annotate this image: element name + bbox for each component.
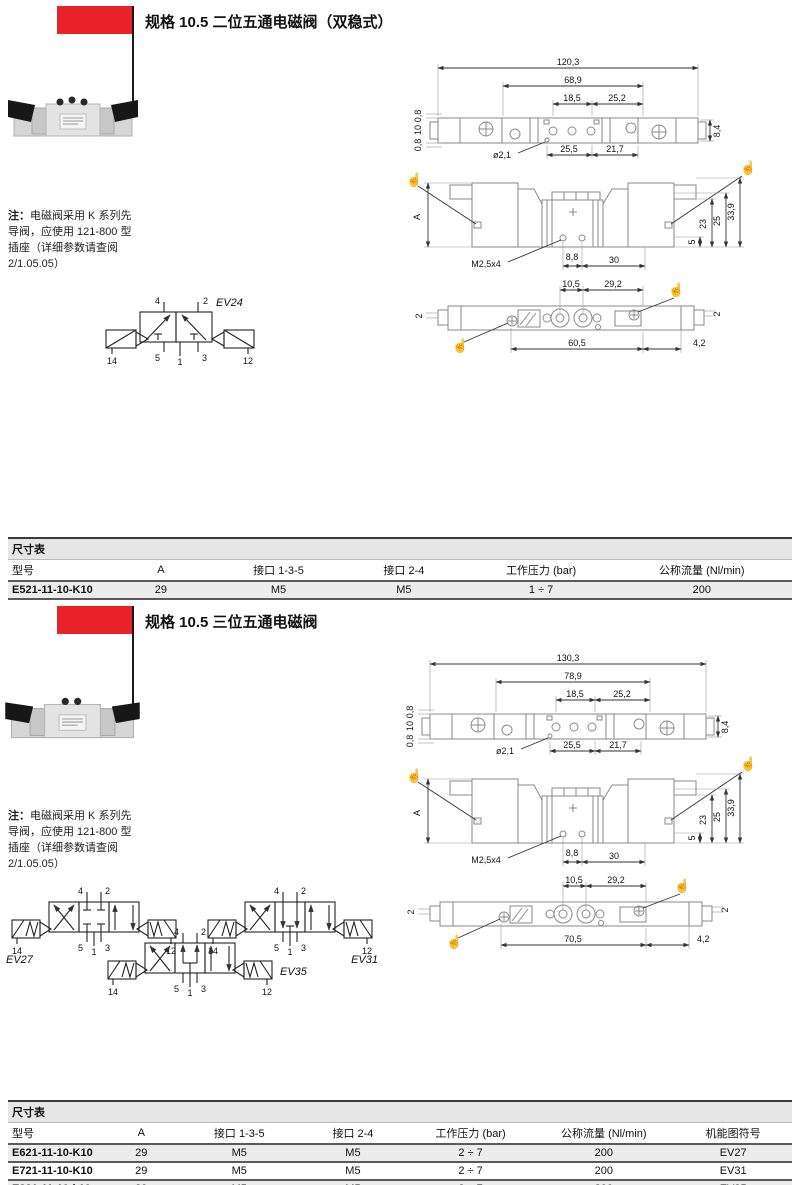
port-label-5: 5 [155, 353, 160, 363]
manual-override-hand-icon: ☝ [406, 767, 422, 784]
col-flow: 公称流量 (Nl/min) [533, 1123, 674, 1144]
col-ports-24: 接口 2-4 [298, 1123, 408, 1144]
port-label-5: 5 [78, 943, 83, 953]
note-1: 注：电磁阀采用 K 系列先 导阀，应使用 121-800 型 插座（详细参数请查… [8, 208, 176, 272]
note-2: 注：电磁阀采用 K 系列先 导阀，应使用 121-800 型 插座（详细参数请查… [8, 808, 176, 872]
valve-symbol-ev24: 4 2 5 1 3 14 12 EV24 [100, 294, 260, 372]
manual-override-hand-icon: ☝ [668, 281, 684, 298]
dimension-table-1: 尺寸表 型号 A 接口 1-3-5 接口 2-4 工作压力 (bar) 公称流量… [8, 537, 792, 600]
dim-right-23: 23 [698, 219, 708, 229]
port-label-12: 12 [262, 987, 272, 997]
dim-port-spacing: 18,5 [563, 93, 581, 103]
product-photo-bistable-valve [8, 90, 138, 148]
ev24-symbol-graphics [106, 302, 254, 356]
manual-override-hand-icon: ☝ [740, 159, 756, 176]
dim-right-total-height: 33,9 [726, 799, 736, 817]
note-line: 导阀，应使用 121-800 型 [8, 824, 176, 840]
dim-overall-length: 130,3 [557, 653, 580, 663]
manual-override-hand-icon: ☝ [740, 755, 756, 772]
cell-pressure: 2 ÷ 7 [408, 1180, 533, 1185]
dim-port-pitch: 10,5 [565, 875, 583, 885]
dim-right-25: 25 [712, 812, 722, 822]
valve-photo-graphic [8, 97, 138, 137]
section1-title: 规格 10.5 二位五通电磁阀（双稳式） [145, 11, 393, 32]
top-view: 120,3 68,9 18,5 25,2 0,8 10 0,8 8,4 [413, 57, 722, 160]
note-line: 2/1.05.05） [8, 856, 176, 872]
cell-a: 29 [102, 1180, 180, 1185]
col-ports-24: 接口 2-4 [337, 560, 470, 581]
cell-model: E821-11-10-k10 [8, 1180, 102, 1185]
section2-red-block [57, 606, 133, 634]
dim-body-length: 68,9 [564, 75, 582, 85]
cell-ports-135: M5 [180, 1144, 298, 1162]
port-label-3: 3 [202, 353, 207, 363]
col-pressure: 工作压力 (bar) [471, 560, 612, 581]
dim-hole-diameter: ø2,1 [496, 746, 514, 756]
port-label-4: 4 [78, 886, 83, 896]
dim-width: 10 [405, 721, 415, 731]
port-label-4: 4 [174, 927, 179, 937]
table1: 型号 A 接口 1-3-5 接口 2-4 工作压力 (bar) 公称流量 (Nl… [8, 560, 792, 600]
col-function-symbol: 机能图符号 [674, 1123, 792, 1144]
dim-end-offset: 4,2 [693, 338, 706, 348]
note-line: 注：电磁阀采用 K 系列先 [8, 808, 176, 824]
cell-ports-135: M5 [180, 1180, 298, 1185]
dim-edge-offset-bottom: 0,8 [413, 139, 423, 152]
dim-stub-right: 2 [720, 907, 730, 912]
dim-stub-left: 2 [414, 313, 424, 318]
dim-right-5: 5 [687, 239, 697, 244]
dim-bottom-1: 25,5 [563, 740, 581, 750]
cell-ports-135: M5 [180, 1162, 298, 1180]
port-label-4: 4 [155, 296, 160, 306]
product-photo-three-position-valve [5, 690, 140, 750]
port-label-1: 1 [91, 947, 96, 957]
note-line: 注：电磁阀采用 K 系列先 [8, 208, 176, 224]
cell-pressure: 2 ÷ 7 [408, 1144, 533, 1162]
table2-header-row: 型号 A 接口 1-3-5 接口 2-4 工作压力 (bar) 公称流量 (Nl… [8, 1123, 792, 1144]
top-view: 130,3 78,9 18,5 25,2 0,8 10 0,8 8,4 [405, 653, 730, 756]
dim-port-spacing2: 25,2 [613, 689, 631, 699]
table2: 型号 A 接口 1-3-5 接口 2-4 工作压力 (bar) 公称流量 (Nl… [8, 1123, 792, 1185]
col-ports-135: 接口 1-3-5 [220, 560, 338, 581]
port-label-5: 5 [174, 984, 179, 994]
dim-hole-diameter: ø2,1 [493, 150, 511, 160]
front-view: ☝ ☝ A M2,5x4 8,8 30 5 23 25 [406, 755, 756, 866]
port-label-2: 2 [301, 886, 306, 896]
dimension-drawing-three-position: 130,3 78,9 18,5 25,2 0,8 10 0,8 8,4 [398, 648, 800, 988]
dim-body-length: 78,9 [564, 671, 582, 681]
col-pressure: 工作压力 (bar) [408, 1123, 533, 1144]
port-label-14: 14 [107, 356, 117, 366]
dim-port-spacing: 18,5 [566, 689, 584, 699]
bottom-view: 2 2 10,5 29,2 60,5 4,2 ☝ ☝ [414, 279, 722, 354]
cell-model: E721-11-10-K10 [8, 1162, 102, 1180]
dim-stub-right: 2 [712, 311, 722, 316]
dim-right-23: 23 [698, 815, 708, 825]
cell-pressure: 1 ÷ 7 [471, 581, 612, 599]
table1-caption: 尺寸表 [8, 537, 792, 560]
col-model: 型号 [8, 560, 102, 581]
cell-function-symbol: EV27 [674, 1144, 792, 1162]
table-row: E521-11-10-K10 29 M5 M5 1 ÷ 7 200 [8, 581, 792, 599]
dim-port-to-end: 29,2 [604, 279, 622, 289]
cell-ports-135: M5 [220, 581, 338, 599]
dim-stub-left: 2 [406, 909, 416, 914]
table-row: E721-11-10-K10 29 M5 M5 2 ÷ 7 200 EV31 [8, 1162, 792, 1180]
dim-height-A: A [412, 810, 422, 816]
dim-end-width: 8,4 [720, 721, 730, 734]
col-model: 型号 [8, 1123, 102, 1144]
cell-a: 29 [102, 581, 220, 599]
dim-fixing-spacing: 30 [609, 851, 619, 861]
cell-model: E521-11-10-K10 [8, 581, 102, 599]
catalog-page: 规格 10.5 二位五通电磁阀（双稳式） 注：电磁阀采用 K 系列先 导阀，应使… [0, 0, 800, 1185]
cell-function-symbol: EV35 [674, 1180, 792, 1185]
cell-flow: 200 [533, 1180, 674, 1185]
port-label-12: 12 [243, 356, 253, 366]
manual-override-hand-icon: ☝ [446, 933, 462, 950]
cell-flow: 200 [533, 1144, 674, 1162]
dim-port-pitch: 10,5 [562, 279, 580, 289]
cell-ports-24: M5 [298, 1180, 408, 1185]
manual-override-hand-icon: ☝ [406, 171, 422, 188]
dim-right-total-height: 33,9 [726, 203, 736, 221]
cell-model: E621-11-10-K10 [8, 1144, 102, 1162]
col-a: A [102, 1123, 180, 1144]
section1-red-block [57, 6, 133, 34]
symbol-name-ev24: EV24 [216, 297, 243, 309]
cell-ports-24: M5 [298, 1144, 408, 1162]
dim-edge-offset-top: 0,8 [405, 706, 415, 719]
dim-end-width: 8,4 [712, 125, 722, 138]
dim-end-offset: 4,2 [697, 934, 710, 944]
dim-right-25: 25 [712, 216, 722, 226]
port-label-2: 2 [105, 886, 110, 896]
port-label-1: 1 [177, 357, 182, 367]
dim-port-spacing2: 25,2 [608, 93, 626, 103]
dim-port-offset: 8,8 [566, 252, 579, 262]
thread-callout: M2,5x4 [471, 855, 501, 865]
dim-bottom-2: 21,7 [606, 144, 624, 154]
front-view: ☝ ☝ A M2,5x4 8,8 30 5 23 25 [406, 159, 756, 270]
table2-caption: 尺寸表 [8, 1100, 792, 1123]
dim-bottom-2: 21,7 [609, 740, 627, 750]
port-label-14: 14 [108, 987, 118, 997]
note-line: 2/1.05.05） [8, 256, 176, 272]
dimension-drawing-bistable: 120,3 68,9 18,5 25,2 0,8 10 0,8 8,4 [398, 52, 800, 382]
section2-title: 规格 10.5 三位五通电磁阀 [145, 611, 318, 632]
dim-port-to-end: 29,2 [607, 875, 625, 885]
dimension-table-2: 尺寸表 型号 A 接口 1-3-5 接口 2-4 工作压力 (bar) 公称流量… [8, 1100, 792, 1185]
dim-overall-length: 120,3 [557, 57, 580, 67]
dim-bottom-1: 25,5 [560, 144, 578, 154]
valve-symbol-ev35: 4 2 5 1 3 14 12 EV35 [100, 925, 315, 1005]
note-line: 导阀，应使用 121-800 型 [8, 224, 176, 240]
cell-a: 29 [102, 1162, 180, 1180]
dim-fixing-spacing: 30 [609, 255, 619, 265]
manual-override-hand-icon: ☝ [674, 877, 690, 894]
table-row: E621-11-10-K10 29 M5 M5 2 ÷ 7 200 EV27 [8, 1144, 792, 1162]
symbol-name-ev27: EV27 [6, 954, 34, 964]
note-line: 插座（详细参数请查阅 [8, 840, 176, 856]
cell-function-symbol: EV31 [674, 1162, 792, 1180]
table1-header-row: 型号 A 接口 1-3-5 接口 2-4 工作压力 (bar) 公称流量 (Nl… [8, 560, 792, 581]
port-label-2: 2 [203, 296, 208, 306]
bottom-view: 2 2 10,5 29,2 70,5 4,2 ☝ ☝ [406, 875, 730, 950]
dim-right-5: 5 [687, 835, 697, 840]
cell-ports-24: M5 [337, 581, 470, 599]
dim-edge-offset-top: 0,8 [413, 110, 423, 123]
col-flow: 公称流量 (Nl/min) [612, 560, 792, 581]
dim-height-A: A [412, 214, 422, 220]
cell-flow: 200 [533, 1162, 674, 1180]
cell-pressure: 2 ÷ 7 [408, 1162, 533, 1180]
col-a: A [102, 560, 220, 581]
port-label-3: 3 [201, 984, 206, 994]
symbol-name-ev35: EV35 [280, 966, 308, 978]
ev35-symbol-graphics [108, 933, 272, 987]
port-label-4: 4 [274, 886, 279, 896]
table-row: E821-11-10-k10 29 M5 M5 2 ÷ 7 200 EV35 [8, 1180, 792, 1185]
note-line: 插座（详细参数请查阅 [8, 240, 176, 256]
dim-width: 10 [413, 125, 423, 135]
cell-flow: 200 [612, 581, 792, 599]
port-label-2: 2 [201, 927, 206, 937]
thread-callout: M2,5x4 [471, 259, 501, 269]
dim-port-offset: 8,8 [566, 848, 579, 858]
port-label-1: 1 [187, 988, 192, 998]
cell-a: 29 [102, 1144, 180, 1162]
symbol-name-ev31: EV31 [351, 954, 378, 964]
dim-fixing-length: 60,5 [568, 338, 586, 348]
valve-photo-graphic [5, 698, 139, 738]
dim-edge-offset-bottom: 0,8 [405, 735, 415, 748]
manual-override-hand-icon: ☝ [452, 337, 468, 354]
dim-fixing-length: 70,5 [564, 934, 582, 944]
col-ports-135: 接口 1-3-5 [180, 1123, 298, 1144]
cell-ports-24: M5 [298, 1162, 408, 1180]
